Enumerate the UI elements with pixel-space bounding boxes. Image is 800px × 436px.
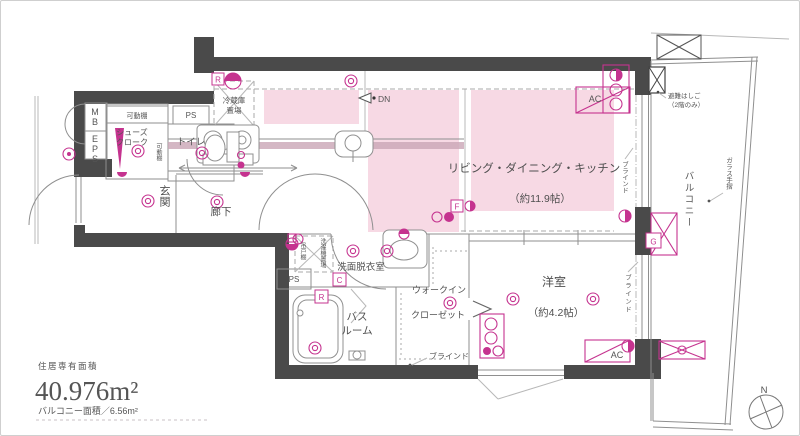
badge-g: G — [650, 238, 656, 247]
neighbor-hatch-box — [657, 35, 701, 59]
label-eps: EPS — [90, 134, 100, 164]
label-blind-ldk: ブラインド — [621, 160, 629, 194]
label-washroom: 洗面脱衣室 — [337, 261, 385, 273]
escape-hatch — [649, 67, 666, 98]
area-balcony: バルコニー面積／6.56m² — [38, 405, 138, 416]
label-ps-1: PS — [186, 111, 197, 120]
outdoor-unit — [659, 341, 705, 359]
label-escape-ladder-2: （2階のみ） — [668, 100, 704, 109]
label-blind-bottom: ブラインド — [429, 351, 469, 361]
badge-f: F — [455, 203, 460, 212]
label-hanging-cupboard: 吊戸棚 — [299, 242, 306, 261]
label-bedroom: 洋室 — [542, 274, 566, 289]
label-washer: 洗濯機置場 — [319, 237, 326, 269]
ldk-door-arc-left — [259, 174, 315, 230]
badge-r-bath: R — [319, 293, 325, 302]
label-shoe-closet-2: クローク — [116, 138, 148, 147]
label-bath-2: ルーム — [341, 325, 372, 337]
compass-north-label: N — [761, 385, 768, 396]
label-ac-bedroom: AC — [611, 350, 624, 360]
label-bath-1: バス — [347, 311, 368, 323]
badge-c: C — [337, 276, 343, 285]
label-movable-shelf-v: 可動棚 — [155, 143, 162, 162]
area-caption: 住居専有面積 — [38, 361, 98, 371]
label-dn: DN — [378, 94, 390, 104]
floorplan-page: N R R C G F MB EPS PS PS 可動棚 可動棚 シューズ クロ… — [0, 0, 800, 436]
label-wic-2: クローゼット — [411, 309, 465, 320]
switch-cluster-bedroom — [480, 314, 504, 358]
label-mb: MB — [90, 107, 100, 127]
floor-plan: N R R C G F MB EPS PS PS 可動棚 可動棚 シューズ クロ… — [1, 1, 799, 435]
labels: MB EPS PS PS 可動棚 可動棚 シューズ クローク トイレ 冷蔵庫 置… — [1, 1, 733, 361]
label-ps-2: PS — [289, 275, 300, 284]
label-fridge-2: 置場 — [227, 105, 242, 115]
label-bedroom-size: （約4.2帖） — [528, 306, 585, 319]
badge-r-fridge: R — [215, 76, 221, 85]
label-fridge-1: 冷蔵庫 — [223, 95, 246, 105]
ldk-floor-shading — [264, 90, 614, 232]
area-value: 40.976m² — [35, 376, 138, 406]
label-blind-bedroom: ブラインド — [624, 273, 632, 314]
label-movable-shelf: 可動棚 — [127, 111, 148, 120]
label-escape-ladder-1: 避難はしご — [668, 91, 701, 100]
entrance-door-arc — [29, 175, 79, 225]
label-ldk-size: （約11.9帖） — [509, 192, 571, 205]
area-statement: 住居専有面積 40.976m² バルコニー面積／6.56m² — [35, 361, 209, 420]
label-glass-rail: ガラス手摺 — [725, 157, 733, 191]
label-toilet: トイレ — [177, 137, 206, 148]
label-entrance: 玄関 — [158, 184, 171, 207]
label-wic-1: ウォークイン — [412, 285, 466, 295]
label-ac-ldk: AC — [589, 94, 602, 104]
label-balcony: バルコニー — [683, 171, 695, 229]
label-hallway: 廊下 — [211, 205, 232, 218]
label-shoe-closet-1: シューズ — [116, 127, 148, 137]
compass: N — [749, 385, 783, 429]
label-ldk: リビング・ダイニング・キッチン — [448, 161, 621, 175]
ldk-door-arc-right — [315, 174, 373, 230]
wic-door-chevron — [473, 301, 491, 317]
